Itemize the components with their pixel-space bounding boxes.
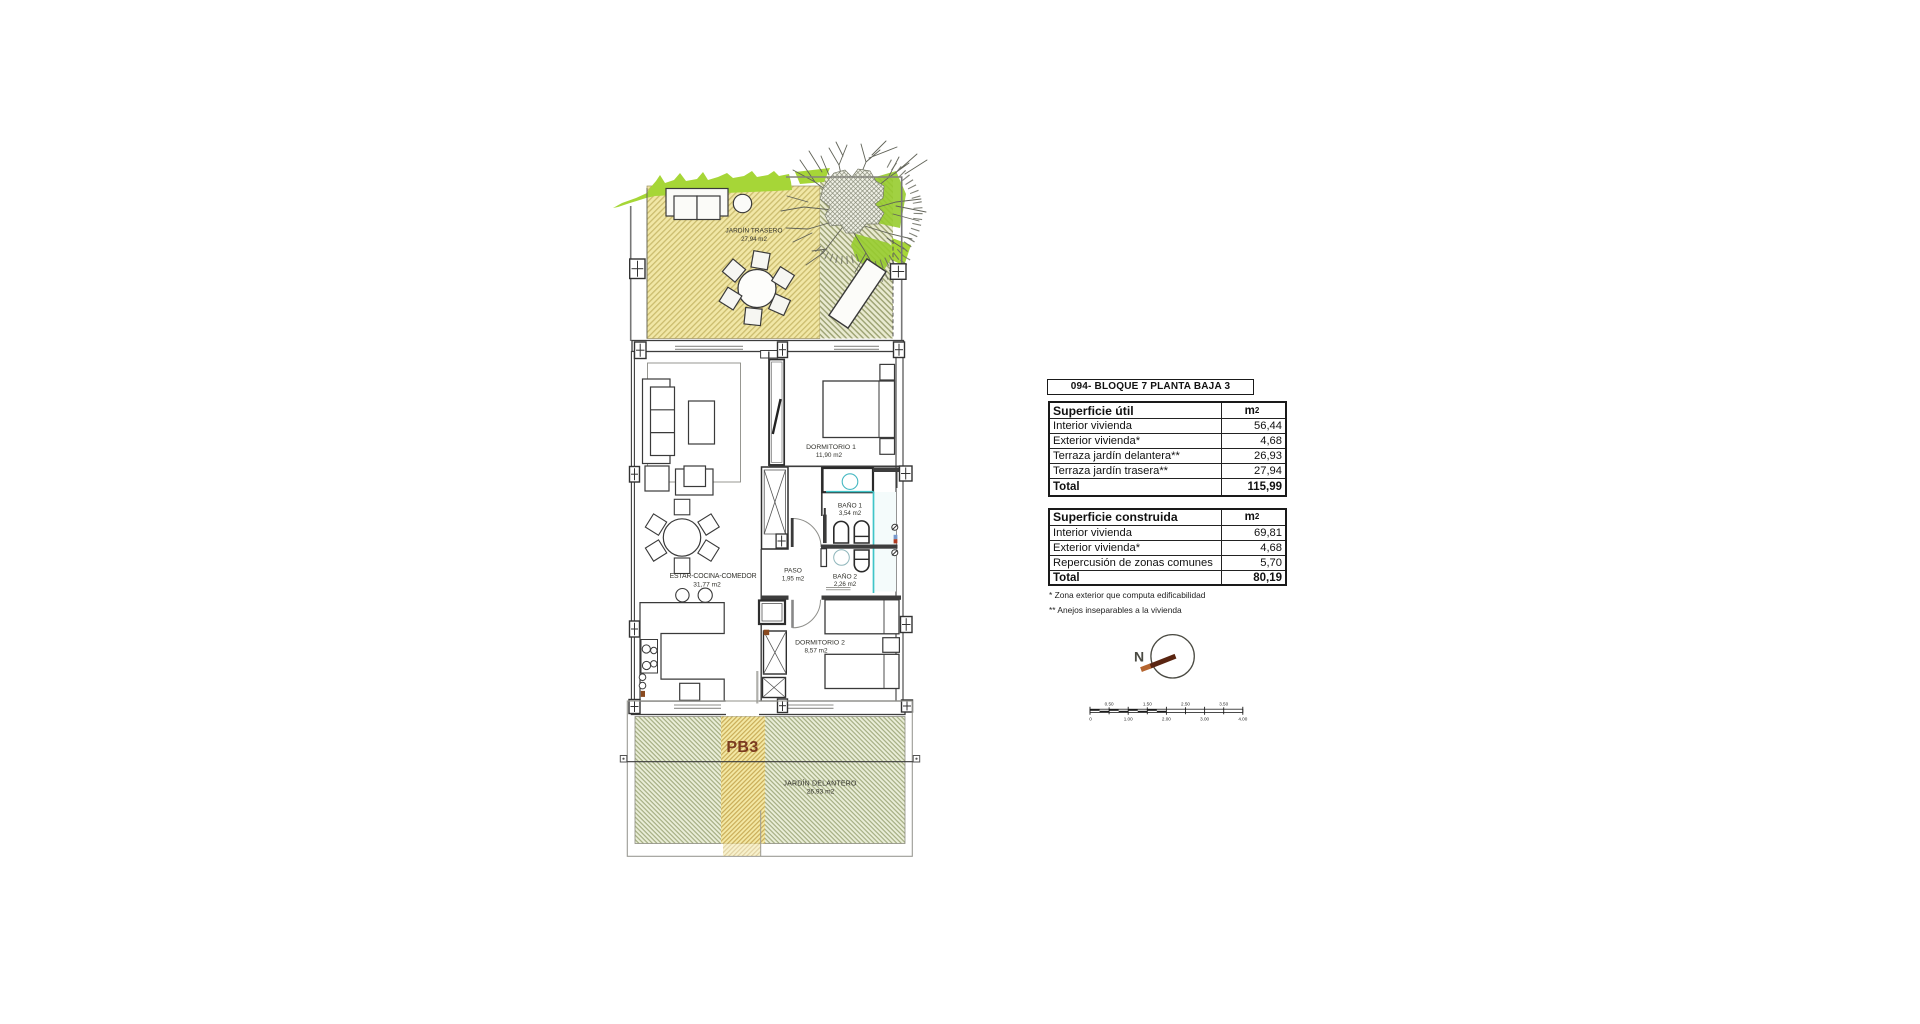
svg-text:1.00: 1.00: [1124, 717, 1133, 722]
svg-text:4.00: 4.00: [1238, 717, 1247, 722]
svg-text:0.50: 0.50: [1105, 702, 1114, 707]
svg-text:31,77 m2: 31,77 m2: [693, 582, 721, 589]
svg-text:3.50: 3.50: [1219, 702, 1228, 707]
svg-text:BAÑO 1: BAÑO 1: [838, 501, 863, 510]
svg-text:PASO: PASO: [784, 568, 802, 575]
svg-text:BAÑO 2: BAÑO 2: [833, 572, 858, 581]
svg-text:11,90 m2: 11,90 m2: [816, 452, 843, 459]
svg-text:2.00: 2.00: [1162, 717, 1171, 722]
svg-text:3.00: 3.00: [1200, 717, 1209, 722]
svg-text:1,95 m2: 1,95 m2: [782, 576, 805, 583]
svg-text:N: N: [1134, 649, 1144, 665]
svg-text:2,26 m2: 2,26 m2: [834, 581, 857, 588]
svg-text:DORMITORIO 1: DORMITORIO 1: [806, 444, 856, 451]
svg-text:3,54 m2: 3,54 m2: [839, 510, 862, 517]
svg-text:ESTAR-COCINA-COMEDOR: ESTAR-COCINA-COMEDOR: [670, 573, 757, 580]
svg-text:JARDÍN DELANTERO: JARDÍN DELANTERO: [783, 779, 857, 788]
svg-text:27,94 m2: 27,94 m2: [741, 236, 767, 243]
svg-text:DORMITORIO 2: DORMITORIO 2: [795, 640, 845, 647]
svg-text:0: 0: [1089, 717, 1092, 722]
svg-text:26,93 m2: 26,93 m2: [807, 789, 835, 796]
svg-text:JARDÍN TRASERO: JARDÍN TRASERO: [725, 226, 782, 235]
svg-text:2.50: 2.50: [1181, 702, 1190, 707]
svg-text:PB3: PB3: [726, 739, 758, 756]
svg-text:1.50: 1.50: [1143, 702, 1152, 707]
svg-text:8,57 m2: 8,57 m2: [804, 648, 828, 655]
